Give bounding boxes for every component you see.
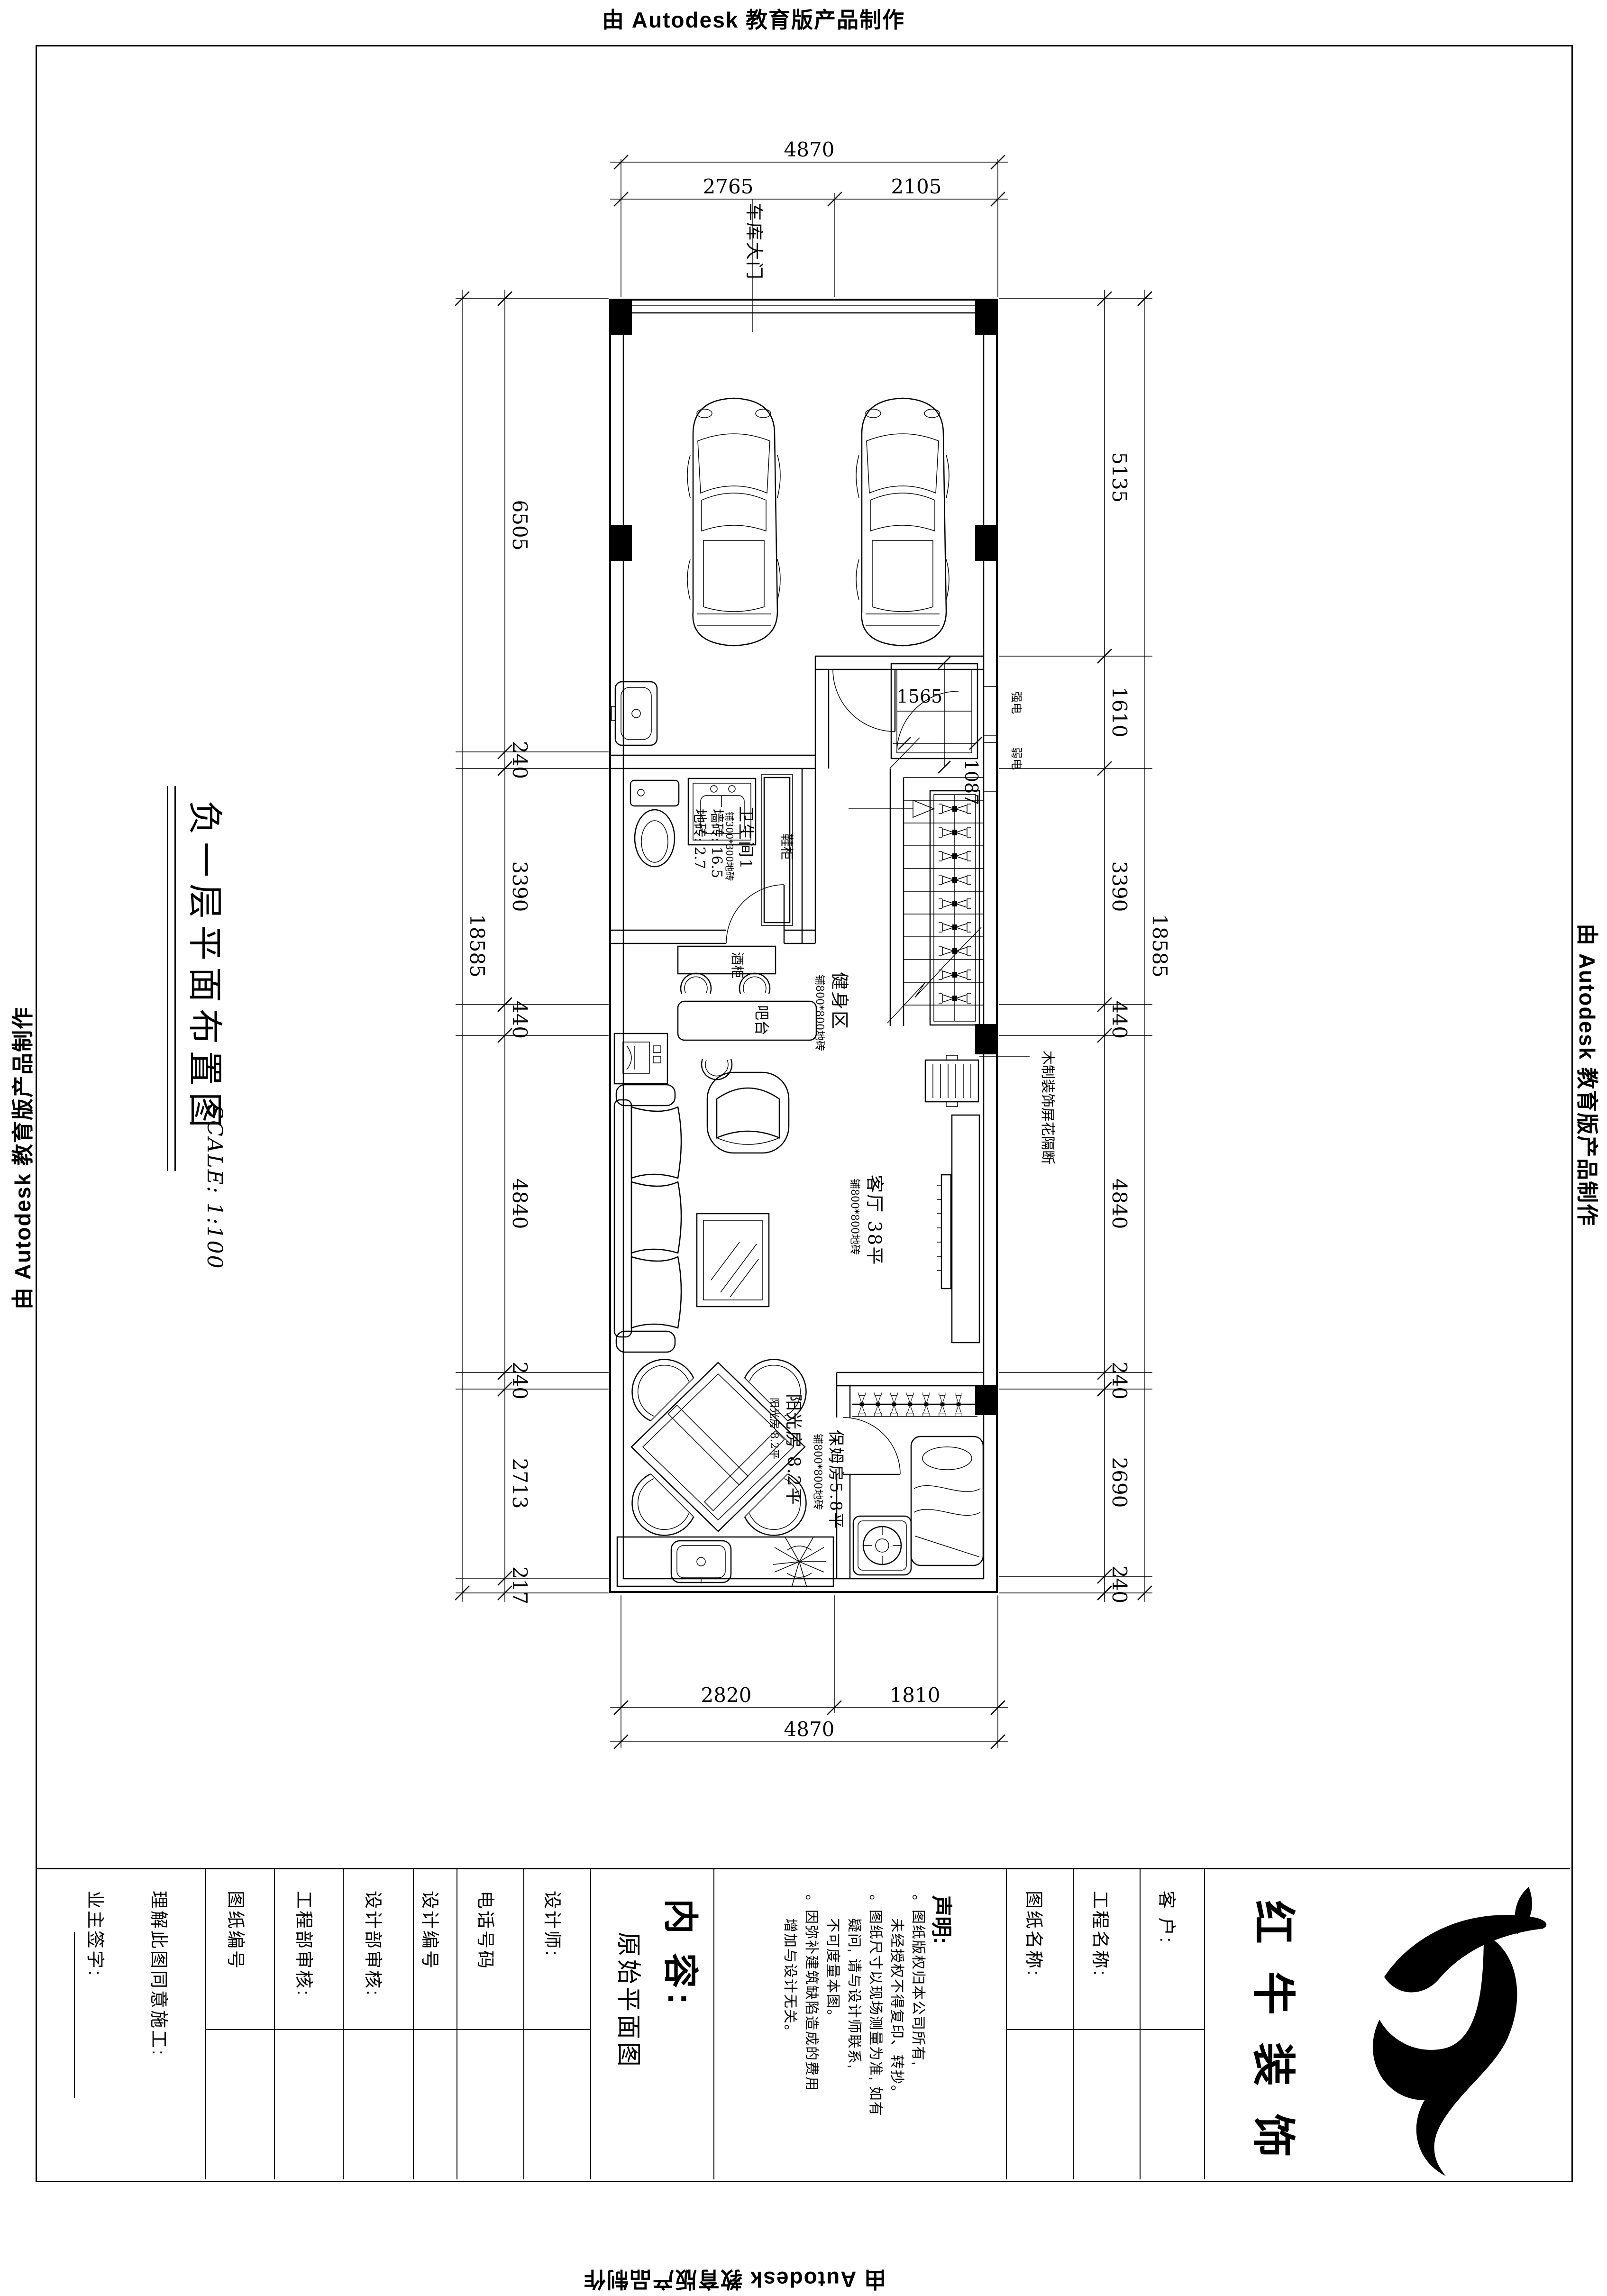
notice-line: 。图纸尺寸以现场测量为准, 如有 xyxy=(867,1894,887,2117)
tb-col-line xyxy=(413,1868,414,2179)
label-bathroom: 卫生间1 xyxy=(736,806,755,870)
field-project-name: 工程名称: xyxy=(1089,1891,1115,1977)
sofa-icon xyxy=(614,1085,681,1352)
dim-bottom-left: 2820 xyxy=(701,1683,752,1707)
dim-right-4: 4840 xyxy=(1108,1179,1131,1229)
field-drawing-no: 图纸编号 xyxy=(224,1891,250,1970)
dim-left-7: 217 xyxy=(508,1566,531,1604)
field-content-value: 原始平面图 xyxy=(613,1932,648,2069)
label-bar: 吧台 xyxy=(753,1005,771,1035)
dim-left-4: 4840 xyxy=(508,1179,531,1229)
dim-top-left: 2765 xyxy=(703,175,754,198)
tb-col-line xyxy=(205,1868,206,2179)
field-agree-construct: 理解此图同意施工: xyxy=(147,1891,173,2057)
label-nanny: 保姆房5.8平 xyxy=(826,1430,845,1530)
tb-col-line xyxy=(457,1868,457,2179)
tb-col-line xyxy=(1204,1868,1205,2179)
tv-wall xyxy=(937,1115,979,1343)
notice-line: 未经授权不得复印、转抄。 xyxy=(888,1918,909,2100)
tb-divider xyxy=(205,2029,591,2030)
field-eng-review: 工程部审核: xyxy=(292,1891,319,1997)
label-living-note: 铺800*800地砖 xyxy=(849,1179,860,1255)
label-bathroom-note1: 墙砖: 16.5 xyxy=(708,809,725,878)
wine-cabinet xyxy=(678,946,776,974)
dim-top-right: 2105 xyxy=(891,175,942,198)
tb-col-line xyxy=(274,1868,275,2179)
titleblock-top-rule xyxy=(36,1868,1570,1869)
dim-right-5: 240 xyxy=(1108,1362,1131,1400)
label-fitness: 健身区 xyxy=(829,972,850,1030)
label-fitness-note: 铺800*800地砖 xyxy=(813,975,825,1051)
dim-left-6: 2713 xyxy=(508,1458,531,1509)
dim-left-0: 6505 xyxy=(508,500,531,551)
plant-icon xyxy=(773,1537,826,1587)
label-wood-screen: 木制装饰屏花隔断 xyxy=(1039,1051,1056,1164)
tb-col-line xyxy=(1006,1868,1007,2179)
label-garage-door: 车库大门 xyxy=(744,203,765,281)
tb-col-line xyxy=(1073,1868,1074,2179)
washer-icon xyxy=(853,1516,911,1575)
label-bathroom-note2: 地砖: 2.7 xyxy=(691,809,708,869)
dim-right-6: 2690 xyxy=(1108,1457,1131,1508)
notice-line: 不可度量本图。 xyxy=(824,1918,845,2024)
field-owner-signature: 业主签字: xyxy=(84,1891,110,1977)
signature-line xyxy=(74,1932,75,2098)
bar-counter xyxy=(678,973,816,1079)
wood-screen xyxy=(925,1055,1030,1107)
dim-left-2: 3390 xyxy=(508,861,531,912)
column xyxy=(610,301,632,335)
label-bathroom-note-small: 铺300*300地砖 xyxy=(724,812,735,881)
brand-char-2: 牛 xyxy=(1245,1971,1308,2015)
entry-door xyxy=(833,669,895,732)
toilet-icon xyxy=(630,780,679,867)
tb-col-line xyxy=(590,1868,591,2179)
field-sheet-name: 图纸名称: xyxy=(1023,1891,1049,1977)
brand-char-4: 饰 xyxy=(1245,2113,1308,2157)
tb-col-line xyxy=(343,1868,344,2179)
dim-bottom-right: 1810 xyxy=(890,1683,940,1707)
notice-line: 疑问, 请与设计师联系, xyxy=(845,1918,866,2069)
dim-left-3: 440 xyxy=(508,1001,531,1039)
bed-icon xyxy=(911,1436,983,1565)
tb-col-line xyxy=(713,1868,714,2179)
coffee-table xyxy=(697,1214,769,1307)
column xyxy=(975,525,997,561)
armchair-icon xyxy=(707,1072,789,1153)
electric-boxes: 强电 弱电 xyxy=(984,686,1023,792)
dim-left-total: 18585 xyxy=(466,914,489,978)
field-client: 客 户: xyxy=(1155,1891,1181,1944)
field-design-no: 设计编号 xyxy=(419,1891,445,1970)
drawing-sheet: 由 Autodesk 教育版产品制作 由 Autodesk 教育版产品制作 由 … xyxy=(0,0,1607,2296)
walls xyxy=(610,300,997,1592)
dim-right-3: 440 xyxy=(1108,1001,1131,1039)
field-design-review: 设计部审核: xyxy=(362,1891,388,1997)
column xyxy=(610,525,632,561)
column xyxy=(975,1024,997,1054)
car-icon xyxy=(687,398,949,646)
label-living: 客厅 38平 xyxy=(864,1175,885,1266)
field-designer: 设计师: xyxy=(541,1891,567,1958)
brand-char-3: 装 xyxy=(1245,2042,1308,2086)
label-sunroom: 阳光房 8.2平 xyxy=(784,1394,803,1506)
tb-divider xyxy=(1006,2029,1205,2030)
brand-char-1: 红 xyxy=(1245,1900,1308,1944)
label-shoe-cabinet: 鞋柜 xyxy=(779,833,794,860)
phone-table xyxy=(614,1034,667,1084)
bull-mark-icon xyxy=(1327,1877,1564,2181)
bathroom-door xyxy=(726,885,784,943)
dim-bottom-total: 4870 xyxy=(784,1718,835,1741)
planter-strip xyxy=(617,1537,833,1587)
dim-right-7: 240 xyxy=(1108,1565,1131,1603)
notice-title: 声明: xyxy=(928,1895,959,1944)
column xyxy=(975,1385,997,1415)
label-wine-cabinet: 酒柜 xyxy=(730,952,745,979)
dim-right-2: 3390 xyxy=(1108,861,1131,912)
dim-right-total: 18585 xyxy=(1148,914,1171,978)
label-weak-power: 弱电 xyxy=(1010,747,1023,770)
dim-right-0: 5135 xyxy=(1108,452,1131,503)
notice-line: 。因弥补建筑缺陷造成的费用 xyxy=(803,1894,823,2092)
label-sunroom-note: 阳光房 8.2平 xyxy=(768,1398,780,1459)
tb-col-line xyxy=(1140,1868,1141,2179)
dim-right-1: 1610 xyxy=(1108,687,1131,738)
dim-entry-w: 1565 xyxy=(897,686,943,707)
dim-top-total: 4870 xyxy=(784,138,835,161)
column xyxy=(975,301,997,335)
field-phone: 电话号码 xyxy=(474,1891,500,1970)
dim-left-5: 240 xyxy=(508,1362,531,1400)
garage-sink xyxy=(612,682,657,745)
notice-line: 增加与设计无关。 xyxy=(781,1918,802,2040)
label-strong-power: 强电 xyxy=(1010,691,1023,714)
dim-left-1: 240 xyxy=(508,741,531,779)
nanny-room xyxy=(843,1393,983,1575)
tb-col-line xyxy=(523,1868,524,2179)
field-content-label: 内 容: xyxy=(658,1899,709,2009)
label-nanny-note: 铺800*800地砖 xyxy=(812,1434,823,1510)
notice-line: 。图纸版权归本公司所有, xyxy=(909,1894,930,2066)
dim-entry-h: 1087 xyxy=(961,759,982,805)
